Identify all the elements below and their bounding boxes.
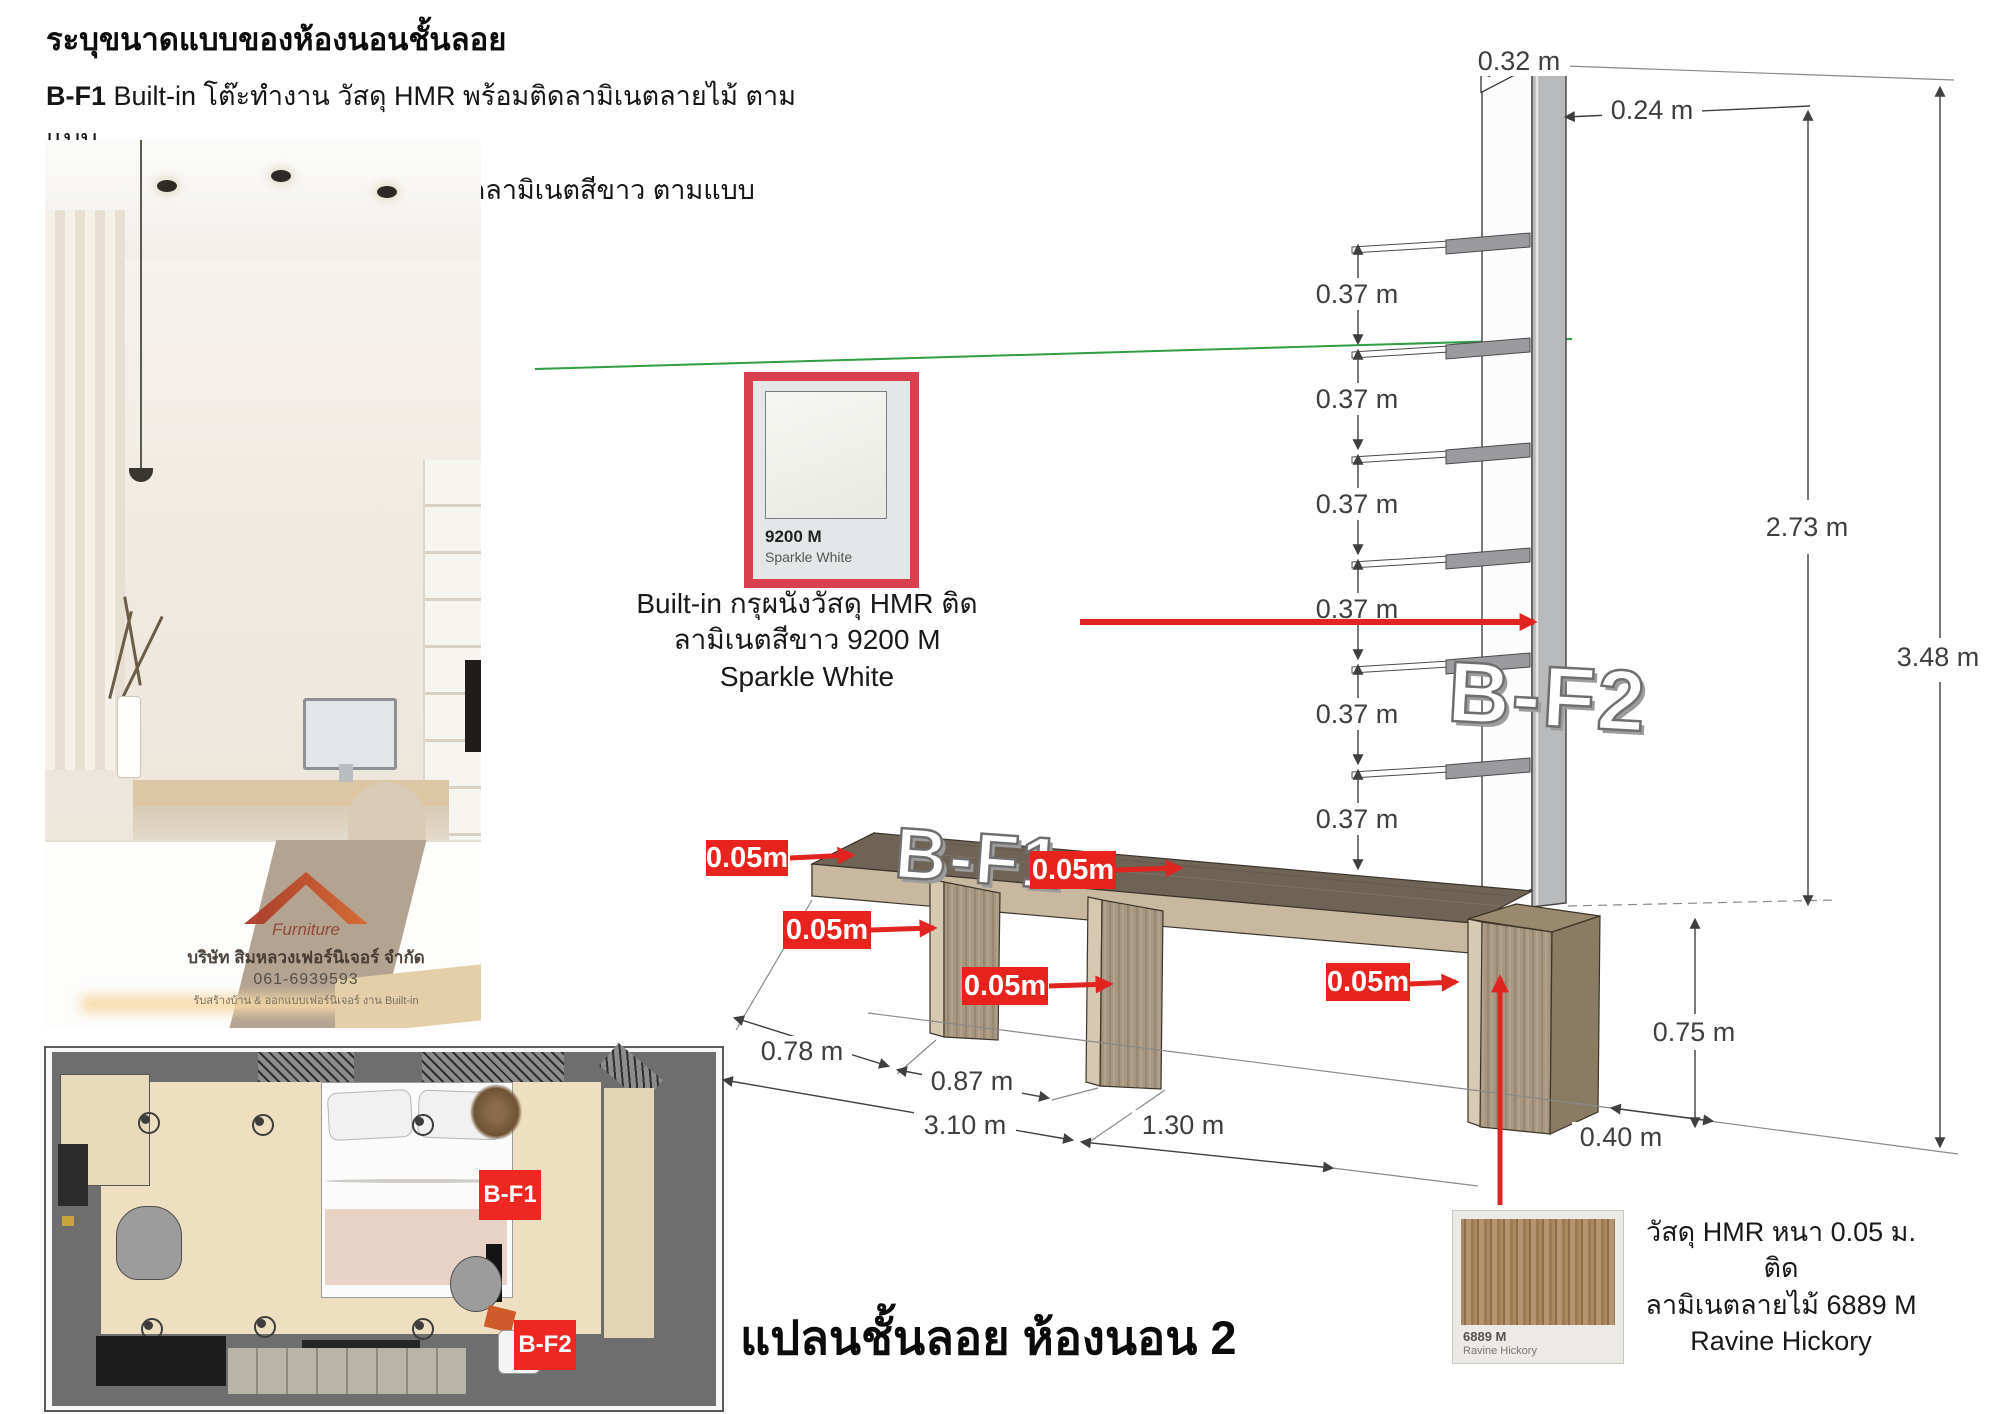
dim-right-verticals [1695,88,1940,1146]
dim-cabinet-depth: 0.40 m [1580,1122,1663,1152]
dim-037: 0.37 m [1316,384,1399,414]
thickness-chip: 0.05m [783,911,871,949]
note-line: ลามิเนตสีขาว 9200 M [592,622,1022,658]
dim-top-depth: 0.32 m [1478,46,1561,76]
dim-037: 0.37 m [1316,804,1399,834]
swatch-sparkle-white: 9200 M Sparkle White [744,372,919,588]
bf2-3d-label: B-F2 [1446,643,1650,752]
dim-037: 0.37 m [1316,279,1399,309]
bf2-base-cabinet [1468,904,1600,1134]
note-line: Ravine Hickory [1628,1323,1934,1359]
dim-mid-run: 0.87 m [931,1066,1014,1096]
elevation-drawing: 0.37 m 0.37 m 0.37 m 0.37 m 0.37 m 0.37 … [0,0,2000,1414]
note-line: วัสดุ HMR หนา 0.05 ม. ติด [1628,1214,1934,1287]
dim-desk-width: 3.10 m [924,1110,1007,1140]
swatch-name: Ravine Hickory [1463,1345,1537,1357]
dim-total-height: 3.48 m [1897,642,1980,672]
dim-037: 0.37 m [1316,699,1399,729]
dim-desk-height: 0.75 m [1653,1017,1736,1047]
thickness-chip: 0.05m [706,840,788,876]
bf2-tall-unit [1482,57,1566,913]
swatch-code: 9200 M [765,527,822,547]
thickness-chip: 0.05m [1030,851,1116,889]
swatch-ravine-hickory: 6889 M Ravine Hickory [1452,1210,1624,1364]
dim-left-run: 0.78 m [761,1036,844,1066]
note-line: ลามิเนตลายไม้ 6889 M [1628,1287,1934,1323]
dim-panel-offset: 0.24 m [1611,95,1694,125]
wood-laminate-note: วัสดุ HMR หนา 0.05 ม. ติด ลามิเนตลายไม้ … [1628,1214,1934,1360]
swatch-code: 6889 M [1463,1329,1506,1344]
design-spec-sheet: ระบุขนาดแบบของห้องนอนชั้นลอย B-F1 Built-… [0,0,2000,1414]
dim-037: 0.37 m [1316,489,1399,519]
swatch-name: Sparkle White [765,549,852,565]
dim-right-run: 1.30 m [1142,1110,1225,1140]
note-line: Sparkle White [592,659,1022,695]
thickness-chip: 0.05m [962,967,1048,1005]
swatch-sample [765,391,887,519]
white-laminate-note: Built-in กรุผนังวัสดุ HMR ติด ลามิเนตสีข… [592,586,1022,695]
swatch-wood-sample [1461,1219,1615,1325]
dim-shelf-gap-labels: 0.37 m 0.37 m 0.37 m 0.37 m 0.37 m 0.37 … [1310,278,1404,835]
thickness-chip: 0.05m [1326,963,1410,1001]
dim-shelf-height: 2.73 m [1766,512,1849,542]
plan-title: แปลนชั้นลอย ห้องนอน 2 [740,1300,1237,1375]
note-line: Built-in กรุผนังวัสดุ HMR ติด [592,586,1022,622]
